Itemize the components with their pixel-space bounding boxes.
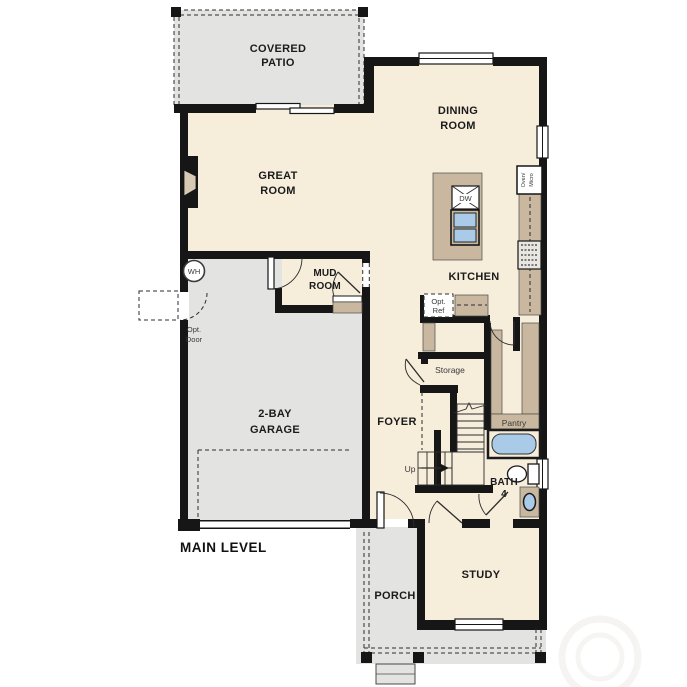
pantry-shelf-east	[522, 323, 539, 414]
optional-refrigerator: Opt. Ref	[424, 294, 453, 317]
porch-post-middle	[413, 652, 424, 663]
opt-door-label-2: Door	[186, 335, 203, 344]
garage-overhead-door	[200, 520, 350, 529]
dining-north-window	[419, 53, 493, 64]
great-room-label: GREAT	[258, 170, 297, 182]
foyer-label: FOYER	[377, 416, 416, 428]
porch-label: PORCH	[374, 590, 415, 602]
fireplace	[180, 156, 198, 208]
plan-title: MAIN LEVEL	[180, 540, 267, 555]
covered-patio-label: COVERED	[250, 43, 307, 55]
floorplan-page: WH Opt. Door	[0, 0, 687, 687]
patio-post-left	[171, 7, 181, 17]
mudroom-cased-opening	[362, 263, 370, 287]
bath-label: BATH	[490, 477, 518, 488]
svg-text:ROOM: ROOM	[440, 120, 475, 132]
porch-post-right	[535, 652, 546, 663]
svg-text:ROOM: ROOM	[260, 185, 295, 197]
oven-micro-label-2: Micro	[529, 173, 535, 186]
dining-east-window	[537, 126, 548, 158]
patio-post-right	[358, 7, 368, 17]
dishwasher: DW	[452, 186, 479, 209]
porch-steps	[376, 664, 415, 684]
opt-door-label-1: Opt.	[187, 325, 201, 334]
opt-ref-label-2: Ref	[433, 306, 446, 315]
mud-room-label: MUD	[313, 268, 336, 279]
opt-ref-label-1: Opt.	[431, 297, 445, 306]
builder-watermark	[562, 619, 638, 687]
water-heater-label: WH	[188, 267, 201, 276]
opt-door-stoop	[139, 291, 178, 320]
svg-text:PATIO: PATIO	[261, 57, 295, 69]
south-counter	[455, 295, 488, 316]
vanity-sink	[520, 487, 539, 517]
kitchen-label: KITCHEN	[449, 271, 500, 283]
oven-micro: Oven/ Micro	[517, 166, 542, 194]
svg-text:4: 4	[501, 489, 507, 500]
dining-room-label: DINING	[438, 105, 478, 117]
pantry-label: Pantry	[502, 418, 527, 428]
water-heater: WH	[184, 261, 205, 282]
svg-text:ROOM: ROOM	[309, 281, 341, 292]
svg-text:GARAGE: GARAGE	[250, 424, 300, 436]
oven-micro-label-1: Oven/	[521, 172, 527, 187]
pantry-shelf-west	[491, 330, 502, 414]
floorplan-drawing: WH Opt. Door	[0, 0, 687, 687]
study-label: STUDY	[462, 569, 501, 581]
mudroom-bench	[333, 296, 362, 313]
study-south-window	[455, 619, 503, 630]
storage-label: Storage	[435, 365, 465, 375]
hall-cabinet	[423, 323, 435, 351]
dishwasher-label: DW	[459, 194, 472, 203]
cooktop	[518, 241, 541, 269]
garage-label: 2-BAY	[258, 408, 292, 420]
up-label: Up	[405, 464, 416, 474]
porch-post-left	[361, 652, 372, 663]
